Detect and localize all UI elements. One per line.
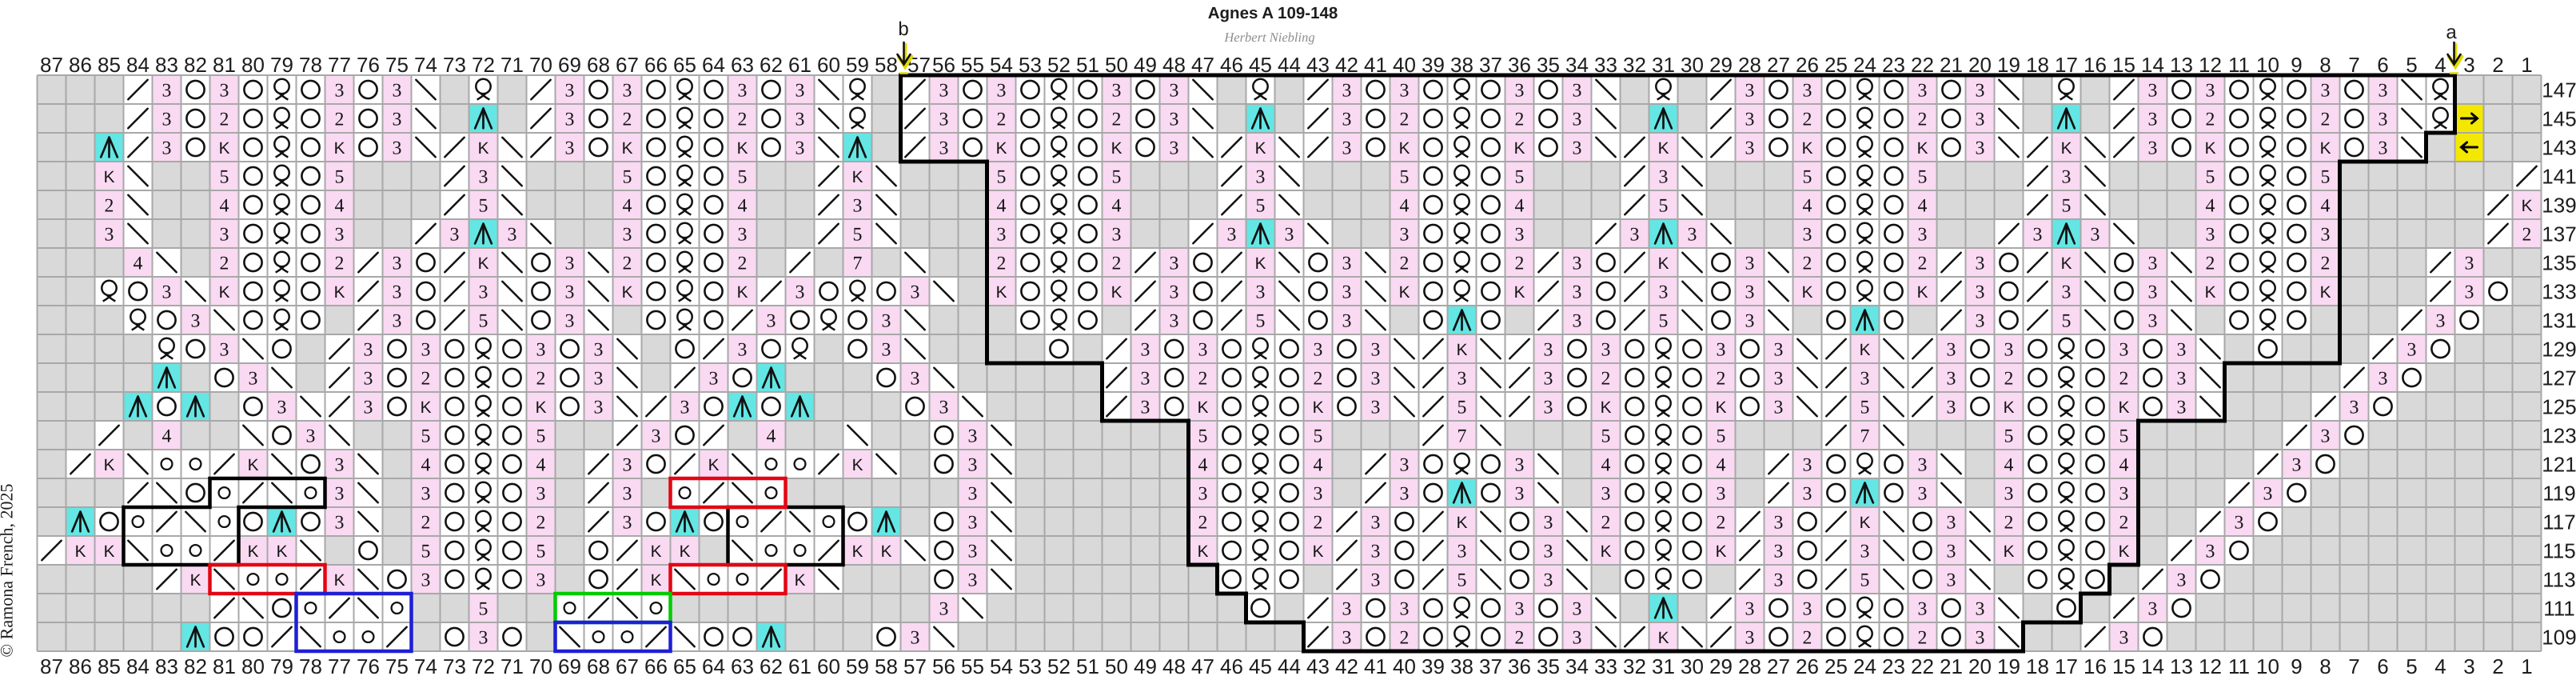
- svg-text:3: 3: [1573, 81, 1582, 102]
- svg-text:3: 3: [1601, 340, 1611, 361]
- svg-text:K: K: [2004, 398, 2015, 417]
- svg-text:11: 11: [2228, 654, 2250, 678]
- svg-text:58: 58: [875, 53, 898, 77]
- svg-text:55: 55: [961, 53, 984, 77]
- svg-text:19: 19: [1997, 654, 2020, 678]
- svg-text:14: 14: [2141, 654, 2164, 678]
- svg-text:14: 14: [2141, 53, 2164, 77]
- svg-text:4: 4: [162, 426, 172, 447]
- svg-text:2: 2: [1803, 628, 1812, 649]
- svg-text:64: 64: [702, 654, 725, 678]
- svg-text:2: 2: [1717, 369, 1726, 390]
- svg-text:K: K: [1658, 629, 1669, 647]
- svg-text:3: 3: [1573, 599, 1582, 620]
- svg-text:16: 16: [2084, 53, 2107, 77]
- svg-text:2: 2: [2321, 110, 2331, 130]
- svg-text:K: K: [996, 139, 1007, 158]
- svg-text:22: 22: [1911, 53, 1934, 77]
- svg-text:3: 3: [1774, 340, 1784, 361]
- svg-text:3: 3: [1803, 455, 1812, 476]
- svg-text:63: 63: [731, 654, 754, 678]
- svg-text:117: 117: [2542, 510, 2575, 534]
- svg-text:3: 3: [939, 599, 949, 620]
- svg-text:4: 4: [2434, 654, 2446, 678]
- svg-text:2: 2: [2321, 254, 2331, 274]
- svg-text:3: 3: [1630, 225, 1640, 246]
- svg-text:3: 3: [1141, 369, 1150, 390]
- svg-text:18: 18: [2026, 53, 2049, 77]
- svg-text:3: 3: [1371, 398, 1381, 418]
- svg-text:3: 3: [2177, 398, 2187, 418]
- svg-text:3: 3: [623, 81, 632, 102]
- svg-text:133: 133: [2542, 280, 2576, 304]
- svg-text:3: 3: [1717, 484, 1726, 505]
- svg-text:3: 3: [911, 282, 920, 303]
- svg-text:55: 55: [961, 654, 984, 678]
- svg-text:3: 3: [1860, 369, 1870, 390]
- svg-text:3: 3: [1947, 340, 1956, 361]
- svg-text:45: 45: [1249, 53, 1272, 77]
- svg-text:52: 52: [1047, 53, 1071, 77]
- svg-text:1: 1: [2521, 53, 2532, 77]
- svg-text:K: K: [334, 139, 345, 158]
- svg-text:4: 4: [738, 196, 748, 217]
- svg-text:2: 2: [1400, 254, 1410, 274]
- svg-text:81: 81: [213, 53, 236, 77]
- svg-text:75: 75: [385, 53, 409, 77]
- svg-text:3: 3: [2292, 455, 2302, 476]
- svg-text:65: 65: [673, 654, 696, 678]
- svg-text:K: K: [622, 283, 633, 302]
- svg-text:53: 53: [1019, 53, 1042, 77]
- svg-text:73: 73: [443, 654, 466, 678]
- svg-text:87: 87: [40, 53, 63, 77]
- svg-text:135: 135: [2542, 251, 2576, 275]
- svg-text:K: K: [2320, 139, 2331, 158]
- svg-text:3: 3: [249, 369, 258, 390]
- svg-text:7: 7: [853, 254, 863, 274]
- svg-text:145: 145: [2542, 107, 2576, 131]
- svg-text:3: 3: [1860, 542, 1870, 562]
- svg-text:3: 3: [1544, 542, 1553, 562]
- svg-text:3: 3: [2465, 282, 2474, 303]
- svg-text:3: 3: [1342, 599, 1352, 620]
- svg-text:K: K: [1860, 341, 1871, 359]
- svg-text:3: 3: [2206, 542, 2215, 562]
- svg-text:56: 56: [932, 53, 955, 77]
- svg-text:3: 3: [1976, 282, 1985, 303]
- svg-text:57: 57: [903, 654, 927, 678]
- svg-text:a: a: [2446, 22, 2457, 43]
- svg-text:5: 5: [1918, 167, 1928, 188]
- svg-text:3: 3: [1457, 369, 1467, 390]
- svg-text:4: 4: [220, 196, 229, 217]
- svg-text:3: 3: [623, 225, 632, 246]
- svg-text:K: K: [1802, 139, 1813, 158]
- svg-text:73: 73: [443, 53, 466, 77]
- svg-text:3: 3: [2321, 81, 2331, 102]
- svg-text:3: 3: [565, 311, 575, 332]
- svg-text:33: 33: [1594, 53, 1617, 77]
- svg-text:41: 41: [1364, 654, 1387, 678]
- svg-text:69: 69: [558, 53, 581, 77]
- svg-text:3: 3: [1659, 167, 1669, 188]
- svg-text:3: 3: [2463, 654, 2474, 678]
- svg-text:54: 54: [990, 53, 1013, 77]
- svg-text:121: 121: [2542, 453, 2576, 477]
- svg-text:3: 3: [1745, 628, 1755, 649]
- svg-text:3: 3: [1515, 484, 1525, 505]
- svg-text:127: 127: [2542, 366, 2576, 390]
- svg-text:3: 3: [1976, 599, 1985, 620]
- svg-text:5: 5: [2062, 311, 2072, 332]
- svg-text:147: 147: [2542, 78, 2576, 102]
- svg-text:2: 2: [1918, 110, 1928, 130]
- svg-text:3: 3: [2033, 225, 2043, 246]
- svg-text:3: 3: [1141, 340, 1150, 361]
- svg-text:3: 3: [2177, 369, 2187, 390]
- svg-text:3: 3: [450, 225, 460, 246]
- svg-text:3: 3: [565, 110, 575, 130]
- svg-text:3: 3: [277, 398, 287, 418]
- svg-text:K: K: [1601, 542, 1612, 561]
- svg-text:3: 3: [1371, 570, 1381, 591]
- svg-text:83: 83: [155, 654, 178, 678]
- svg-text:K: K: [219, 283, 230, 302]
- svg-text:K: K: [248, 456, 259, 474]
- svg-text:K: K: [1658, 139, 1669, 158]
- svg-text:3: 3: [796, 282, 805, 303]
- svg-text:3: 3: [1774, 570, 1784, 591]
- svg-text:68: 68: [587, 53, 610, 77]
- svg-text:82: 82: [184, 53, 207, 77]
- svg-text:77: 77: [328, 654, 351, 678]
- svg-text:119: 119: [2542, 482, 2575, 506]
- svg-text:5: 5: [335, 167, 345, 188]
- svg-text:5: 5: [853, 225, 863, 246]
- svg-text:5: 5: [479, 196, 488, 217]
- svg-text:4: 4: [1601, 455, 1611, 476]
- svg-text:2: 2: [2522, 225, 2532, 246]
- svg-text:3: 3: [2350, 398, 2359, 418]
- svg-text:3: 3: [1371, 369, 1381, 390]
- svg-text:42: 42: [1335, 53, 1358, 77]
- svg-text:27: 27: [1767, 53, 1790, 77]
- svg-text:K: K: [737, 283, 748, 302]
- svg-text:3: 3: [2436, 311, 2446, 332]
- svg-text:3: 3: [1342, 138, 1352, 159]
- svg-text:5: 5: [421, 426, 431, 447]
- svg-text:3: 3: [1544, 570, 1553, 591]
- svg-text:3: 3: [1745, 599, 1755, 620]
- svg-text:3: 3: [2119, 628, 2129, 649]
- svg-text:3: 3: [2177, 340, 2187, 361]
- svg-text:3: 3: [393, 254, 402, 274]
- svg-text:5: 5: [1198, 426, 1208, 447]
- svg-text:75: 75: [385, 654, 409, 678]
- svg-text:115: 115: [2542, 539, 2575, 563]
- svg-text:2: 2: [738, 110, 748, 130]
- svg-text:3: 3: [162, 138, 172, 159]
- svg-text:4: 4: [421, 455, 431, 476]
- svg-text:10: 10: [2256, 53, 2279, 77]
- svg-text:20: 20: [1968, 654, 1992, 678]
- svg-text:18: 18: [2026, 654, 2049, 678]
- svg-text:3: 3: [335, 225, 345, 246]
- svg-text:2: 2: [1314, 513, 1323, 534]
- svg-text:26: 26: [1796, 654, 1819, 678]
- svg-text:23: 23: [1882, 654, 1905, 678]
- svg-text:3: 3: [853, 196, 863, 217]
- svg-text:47: 47: [1191, 654, 1214, 678]
- svg-text:3: 3: [1918, 455, 1928, 476]
- svg-text:9: 9: [2291, 53, 2302, 77]
- svg-text:3: 3: [1803, 81, 1812, 102]
- svg-text:3: 3: [1342, 282, 1352, 303]
- svg-text:3: 3: [1918, 484, 1928, 505]
- svg-text:3: 3: [2062, 282, 2072, 303]
- svg-text:5: 5: [220, 167, 229, 188]
- svg-text:86: 86: [69, 53, 92, 77]
- svg-text:47: 47: [1191, 53, 1214, 77]
- svg-text:K: K: [1716, 398, 1727, 417]
- svg-text:K: K: [651, 542, 662, 561]
- svg-text:3: 3: [1457, 542, 1467, 562]
- svg-text:53: 53: [1019, 654, 1042, 678]
- svg-text:71: 71: [500, 654, 524, 678]
- svg-text:3: 3: [1112, 225, 1122, 246]
- svg-text:76: 76: [357, 654, 380, 678]
- svg-text:3: 3: [1170, 311, 1179, 332]
- svg-text:K: K: [75, 542, 86, 561]
- svg-text:K: K: [622, 139, 633, 158]
- svg-text:3: 3: [364, 340, 373, 361]
- svg-text:4: 4: [134, 254, 143, 274]
- svg-text:3: 3: [1947, 398, 1956, 418]
- svg-text:19: 19: [1997, 53, 2020, 77]
- svg-text:K: K: [104, 168, 115, 186]
- svg-text:3: 3: [2321, 225, 2331, 246]
- svg-text:3: 3: [1112, 81, 1122, 102]
- svg-text:3: 3: [796, 81, 805, 102]
- svg-text:3: 3: [2407, 340, 2417, 361]
- svg-text:3: 3: [594, 340, 604, 361]
- svg-text:50: 50: [1105, 53, 1128, 77]
- svg-text:3: 3: [220, 340, 229, 361]
- svg-text:44: 44: [1278, 53, 1301, 77]
- svg-text:3: 3: [1198, 340, 1208, 361]
- svg-text:125: 125: [2542, 395, 2576, 419]
- svg-text:41: 41: [1364, 53, 1387, 77]
- svg-text:K: K: [737, 139, 748, 158]
- svg-text:2: 2: [536, 369, 546, 390]
- svg-text:3: 3: [1774, 542, 1784, 562]
- svg-text:109: 109: [2542, 626, 2576, 650]
- svg-text:24: 24: [1853, 53, 1876, 77]
- svg-text:5: 5: [738, 167, 748, 188]
- svg-text:3: 3: [1400, 599, 1410, 620]
- svg-text:3: 3: [968, 455, 978, 476]
- svg-text:3: 3: [1342, 311, 1352, 332]
- svg-text:3: 3: [968, 426, 978, 447]
- svg-text:58: 58: [875, 654, 898, 678]
- svg-text:31: 31: [1652, 654, 1675, 678]
- svg-text:46: 46: [1220, 53, 1243, 77]
- svg-text:44: 44: [1278, 654, 1301, 678]
- svg-text:3: 3: [1745, 311, 1755, 332]
- svg-text:4: 4: [2434, 53, 2446, 77]
- svg-text:3: 3: [1976, 81, 1985, 102]
- svg-text:5: 5: [536, 542, 546, 562]
- svg-text:30: 30: [1681, 654, 1704, 678]
- svg-text:80: 80: [241, 654, 265, 678]
- svg-text:1: 1: [2521, 654, 2532, 678]
- svg-text:5: 5: [2406, 53, 2417, 77]
- svg-text:3: 3: [1170, 282, 1179, 303]
- svg-text:3: 3: [939, 398, 949, 418]
- svg-text:2: 2: [1198, 369, 1208, 390]
- svg-text:38: 38: [1450, 654, 1473, 678]
- svg-text:3: 3: [623, 513, 632, 534]
- svg-text:22: 22: [1911, 654, 1934, 678]
- svg-text:K: K: [1313, 398, 1324, 417]
- svg-text:78: 78: [299, 654, 322, 678]
- svg-text:139: 139: [2542, 194, 2576, 218]
- svg-text:40: 40: [1393, 53, 1416, 77]
- svg-text:29: 29: [1709, 53, 1733, 77]
- svg-text:3: 3: [1573, 110, 1582, 130]
- svg-text:2: 2: [997, 110, 1007, 130]
- svg-text:59: 59: [846, 654, 869, 678]
- svg-text:3: 3: [1774, 398, 1784, 418]
- svg-text:K: K: [2119, 398, 2130, 417]
- svg-text:70: 70: [529, 53, 552, 77]
- svg-text:67: 67: [616, 654, 639, 678]
- svg-text:80: 80: [241, 53, 265, 77]
- svg-text:3: 3: [594, 369, 604, 390]
- svg-text:3: 3: [1342, 81, 1352, 102]
- svg-text:3: 3: [1342, 254, 1352, 274]
- svg-text:46: 46: [1220, 654, 1243, 678]
- svg-text:3: 3: [911, 628, 920, 649]
- svg-text:5: 5: [1112, 167, 1122, 188]
- svg-text:K: K: [1198, 542, 1209, 561]
- svg-text:K: K: [2522, 197, 2533, 215]
- svg-text:24: 24: [1853, 654, 1876, 678]
- svg-text:3: 3: [393, 282, 402, 303]
- svg-text:51: 51: [1076, 654, 1099, 678]
- svg-text:49: 49: [1134, 53, 1157, 77]
- svg-text:3: 3: [508, 225, 517, 246]
- svg-text:2: 2: [2492, 654, 2503, 678]
- svg-text:K: K: [1860, 514, 1871, 532]
- svg-text:17: 17: [2055, 53, 2078, 77]
- svg-text:3: 3: [882, 311, 891, 332]
- svg-text:3: 3: [1170, 81, 1179, 102]
- svg-text:3: 3: [1947, 570, 1956, 591]
- svg-text:3: 3: [421, 340, 431, 361]
- svg-text:3: 3: [2091, 225, 2100, 246]
- svg-text:71: 71: [500, 53, 524, 77]
- svg-text:5: 5: [2321, 167, 2331, 188]
- svg-text:10: 10: [2256, 654, 2279, 678]
- svg-text:5: 5: [1803, 167, 1812, 188]
- svg-text:K: K: [277, 542, 288, 561]
- svg-text:141: 141: [2542, 165, 2576, 189]
- svg-text:4: 4: [2206, 196, 2215, 217]
- svg-text:2: 2: [623, 110, 632, 130]
- svg-text:16: 16: [2084, 654, 2107, 678]
- svg-text:3: 3: [1745, 110, 1755, 130]
- svg-text:3: 3: [565, 138, 575, 159]
- svg-text:49: 49: [1134, 654, 1157, 678]
- svg-text:2: 2: [997, 254, 1007, 274]
- svg-text:3: 3: [2379, 138, 2388, 159]
- svg-text:3: 3: [1745, 282, 1755, 303]
- svg-text:4: 4: [2321, 196, 2331, 217]
- svg-text:3: 3: [2463, 53, 2474, 77]
- svg-text:3: 3: [2379, 369, 2388, 390]
- svg-text:K: K: [1514, 139, 1525, 158]
- svg-text:21: 21: [1940, 654, 1963, 678]
- svg-text:3: 3: [1573, 282, 1582, 303]
- svg-text:3: 3: [680, 398, 690, 418]
- svg-text:113: 113: [2542, 568, 2575, 592]
- svg-text:K: K: [1802, 283, 1813, 302]
- svg-text:K: K: [478, 254, 489, 273]
- svg-text:5: 5: [1256, 196, 1266, 217]
- svg-text:43: 43: [1306, 53, 1330, 77]
- svg-text:K: K: [680, 542, 691, 561]
- svg-text:K: K: [536, 398, 547, 417]
- svg-text:3: 3: [393, 81, 402, 102]
- svg-text:83: 83: [155, 53, 178, 77]
- svg-text:3: 3: [335, 513, 345, 534]
- svg-text:4: 4: [2004, 455, 2014, 476]
- svg-text:3: 3: [1573, 254, 1582, 274]
- svg-text:3: 3: [1170, 254, 1179, 274]
- svg-text:2: 2: [1400, 628, 1410, 649]
- svg-text:5: 5: [1717, 426, 1726, 447]
- svg-text:5: 5: [1601, 426, 1611, 447]
- svg-text:3: 3: [1774, 513, 1784, 534]
- svg-text:27: 27: [1767, 654, 1790, 678]
- svg-text:K: K: [1917, 139, 1928, 158]
- svg-text:K: K: [1255, 139, 1266, 158]
- svg-text:2: 2: [1400, 110, 1410, 130]
- svg-text:36: 36: [1508, 53, 1531, 77]
- svg-text:5: 5: [2206, 167, 2215, 188]
- svg-text:48: 48: [1162, 654, 1186, 678]
- svg-text:3: 3: [738, 81, 748, 102]
- svg-text:26: 26: [1796, 53, 1819, 77]
- svg-text:K: K: [334, 571, 345, 590]
- svg-text:3: 3: [421, 484, 431, 505]
- svg-text:K: K: [1658, 254, 1669, 273]
- svg-text:3: 3: [2148, 311, 2158, 332]
- svg-text:K: K: [1399, 283, 1410, 302]
- svg-text:3: 3: [623, 455, 632, 476]
- svg-text:3: 3: [1515, 455, 1525, 476]
- svg-text:3: 3: [1803, 484, 1812, 505]
- svg-text:3: 3: [2148, 138, 2158, 159]
- svg-text:28: 28: [1738, 53, 1761, 77]
- svg-text:5: 5: [1314, 426, 1323, 447]
- svg-text:3: 3: [1515, 599, 1525, 620]
- svg-text:2: 2: [738, 254, 748, 274]
- svg-text:3: 3: [1947, 369, 1956, 390]
- svg-text:8: 8: [2319, 53, 2331, 77]
